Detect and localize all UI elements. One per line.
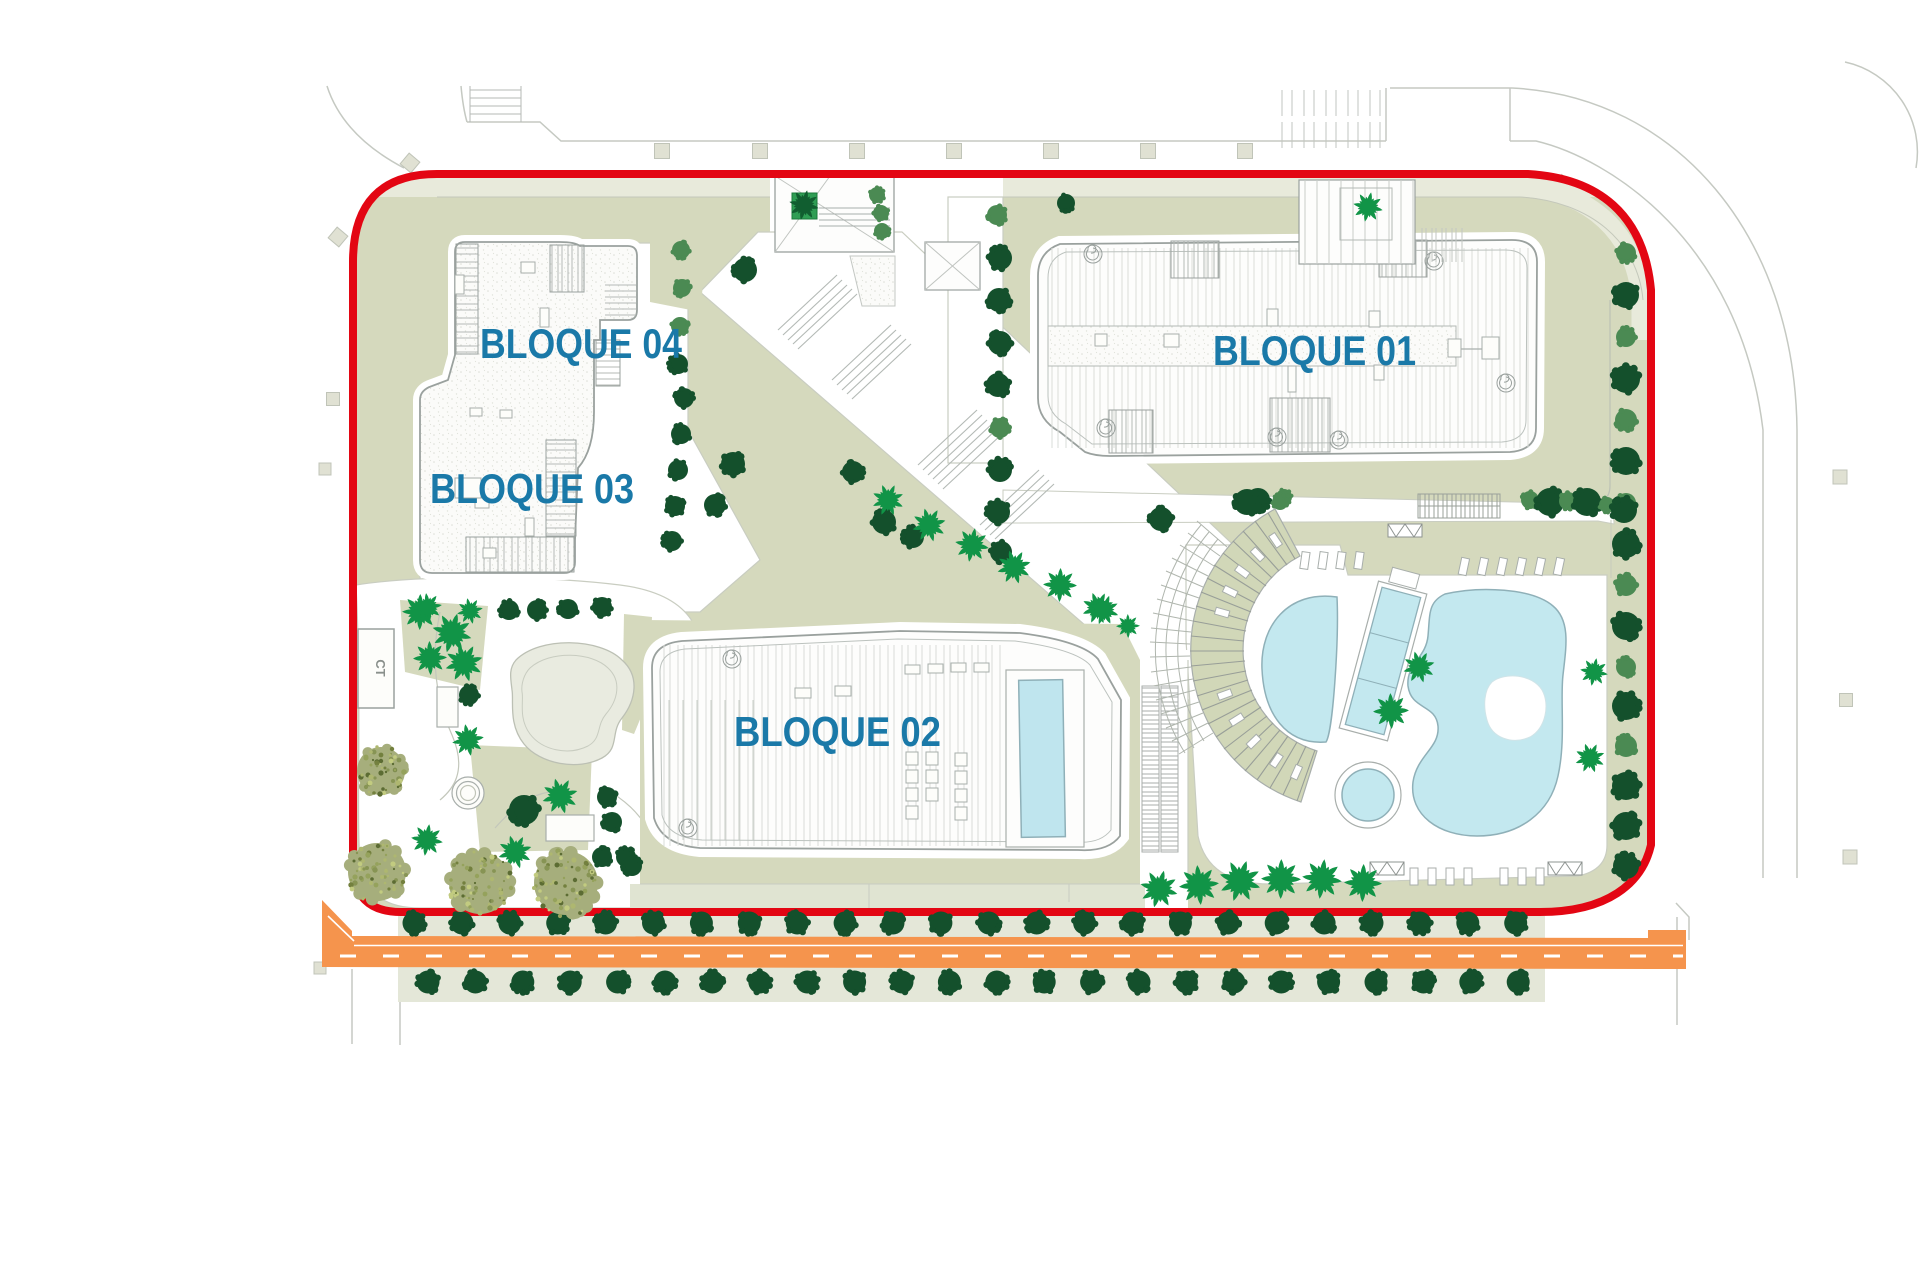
svg-text:CT: CT	[373, 659, 388, 676]
svg-text:BLOQUE 03: BLOQUE 03	[430, 465, 634, 512]
svg-text:BLOQUE 04: BLOQUE 04	[480, 320, 683, 367]
svg-text:BLOQUE 02: BLOQUE 02	[734, 708, 941, 755]
svg-text:BLOQUE 01: BLOQUE 01	[1213, 327, 1416, 374]
